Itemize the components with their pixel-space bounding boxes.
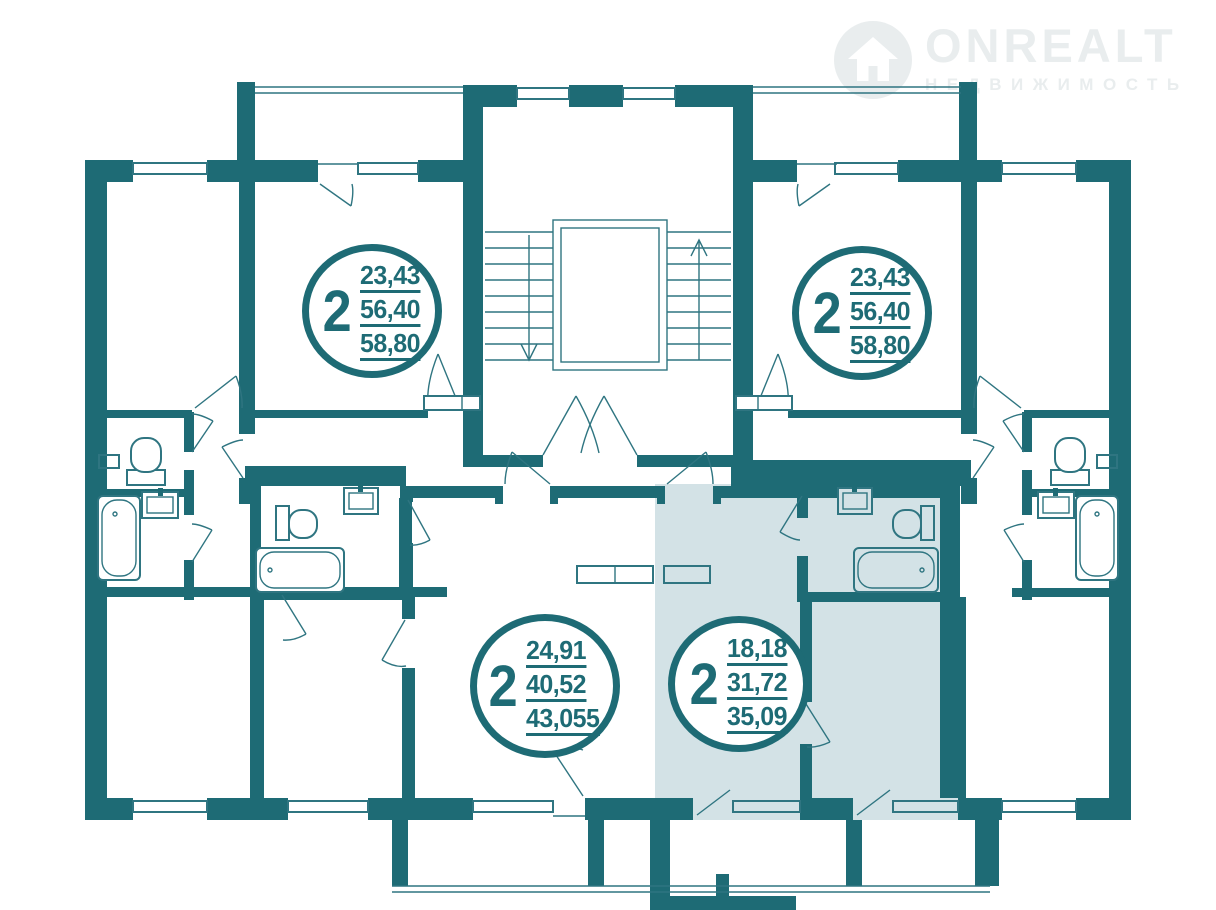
area-list: 24,91 40,52 43,055 bbox=[526, 635, 603, 737]
area-value: 31,72 bbox=[727, 668, 787, 700]
area-list: 23,43 56,40 58,80 bbox=[850, 262, 913, 364]
area-value: 58,80 bbox=[850, 331, 910, 363]
apartment-label-top-left[interactable]: 2 23,43 56,40 58,80 bbox=[302, 244, 442, 378]
bathroom-right bbox=[1038, 438, 1118, 580]
area-value: 23,43 bbox=[850, 263, 910, 295]
bathtub-icon bbox=[98, 496, 140, 580]
area-value: 56,40 bbox=[360, 295, 420, 327]
toilet-icon bbox=[893, 510, 921, 538]
area-value: 56,40 bbox=[850, 297, 910, 329]
area-value: 18,18 bbox=[727, 634, 787, 666]
bathroom-middle bbox=[256, 484, 378, 592]
area-value: 58,80 bbox=[360, 329, 420, 361]
bathtub-icon bbox=[854, 548, 938, 592]
area-value: 43,055 bbox=[526, 704, 599, 736]
apartment-label-top-right[interactable]: 2 23,43 56,40 58,80 bbox=[792, 246, 932, 380]
area-value: 23,43 bbox=[360, 261, 420, 293]
walls bbox=[85, 82, 1131, 910]
bathtub-icon bbox=[1076, 496, 1118, 580]
stair-direction-arrows bbox=[521, 235, 707, 360]
bathroom-left bbox=[98, 438, 178, 580]
area-value: 24,91 bbox=[526, 636, 586, 668]
toilet-icon bbox=[276, 506, 289, 540]
area-value: 40,52 bbox=[526, 670, 586, 702]
room-count: 2 bbox=[813, 280, 842, 347]
apartment-label-bottom-right[interactable]: 2 18,18 31,72 35,09 bbox=[668, 616, 810, 752]
bathtub-icon bbox=[256, 548, 344, 592]
apartment-label-bottom-middle[interactable]: 2 24,91 40,52 43,055 bbox=[470, 614, 620, 758]
room-count: 2 bbox=[690, 651, 719, 718]
area-list: 18,18 31,72 35,09 bbox=[727, 633, 790, 735]
floorplan-page: ONREALT НЕДВИЖИМОСТЬ bbox=[0, 0, 1216, 910]
area-list: 23,43 56,40 58,80 bbox=[360, 260, 423, 362]
area-value: 35,09 bbox=[727, 702, 787, 734]
floorplan-drawing bbox=[0, 0, 1216, 910]
room-count: 2 bbox=[489, 653, 518, 720]
room-count: 2 bbox=[323, 278, 352, 345]
staircase bbox=[485, 220, 731, 370]
